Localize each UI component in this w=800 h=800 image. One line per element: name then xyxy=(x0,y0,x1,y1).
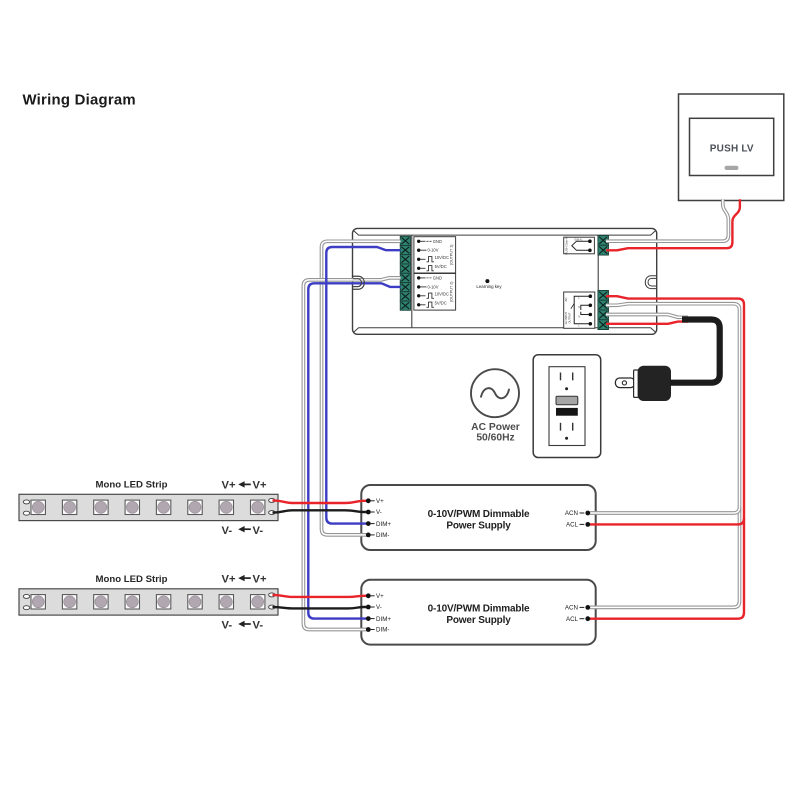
svg-text:V+: V+ xyxy=(222,480,236,492)
svg-text:N: N xyxy=(578,305,580,309)
svg-text:0-10V/PWM Dimmable: 0-10V/PWM Dimmable xyxy=(428,604,530,615)
svg-text:Mono LED Strip: Mono LED Strip xyxy=(96,574,168,585)
svg-text:N: N xyxy=(578,314,580,318)
svg-text:DIM-: DIM- xyxy=(376,627,389,634)
svg-text:V+: V+ xyxy=(222,573,236,585)
svg-text:V-: V- xyxy=(376,604,382,611)
svg-text:V-: V- xyxy=(253,620,264,632)
svg-text:V+: V+ xyxy=(253,480,267,492)
svg-text:V+: V+ xyxy=(253,573,267,585)
svg-text:50/60Hz: 50/60Hz xyxy=(476,433,514,444)
svg-text:(OUTPUT 1): (OUTPUT 1) xyxy=(449,244,453,265)
svg-text:DIM-N: DIM-N xyxy=(574,237,582,241)
svg-text:PUSH Dim-N: PUSH Dim-N xyxy=(565,237,569,255)
svg-text:AC: AC xyxy=(564,297,568,302)
svg-text:DIM-: DIM- xyxy=(376,532,389,539)
svg-text:10V/DC: 10V/DC xyxy=(435,255,449,260)
svg-text:ACL: ACL xyxy=(566,616,579,623)
svg-text:0-10V: 0-10V xyxy=(428,284,439,289)
svg-text:PUSH LV: PUSH LV xyxy=(710,144,754,155)
svg-text:AC INPUT: AC INPUT xyxy=(564,311,568,324)
svg-text:DIM+: DIM+ xyxy=(376,521,391,528)
svg-text:V-: V- xyxy=(222,620,233,632)
svg-text:ACN: ACN xyxy=(565,510,578,517)
svg-text:(OUTPUT 2): (OUTPUT 2) xyxy=(449,281,453,302)
svg-text:ACL: ACL xyxy=(566,522,579,529)
svg-text:OUTPUT: OUTPUT xyxy=(568,312,572,323)
svg-text:ACN: ACN xyxy=(565,605,578,612)
svg-text:Mono LED Strip: Mono LED Strip xyxy=(96,480,168,491)
svg-text:5V/DC: 5V/DC xyxy=(435,264,447,269)
svg-text:V+: V+ xyxy=(376,498,384,505)
svg-text:GND: GND xyxy=(433,239,442,244)
svg-text:V-: V- xyxy=(222,525,233,537)
svg-text:GND: GND xyxy=(433,275,442,280)
svg-text:Learning key: Learning key xyxy=(476,284,502,289)
svg-text:Power Supply: Power Supply xyxy=(446,615,511,626)
svg-text:AC Power: AC Power xyxy=(471,422,520,433)
svg-text:Power Supply: Power Supply xyxy=(446,520,511,531)
svg-text:0-10V/PWM Dimmable: 0-10V/PWM Dimmable xyxy=(428,509,530,520)
svg-text:DIM+: DIM+ xyxy=(376,616,391,623)
svg-text:V+: V+ xyxy=(376,593,384,600)
svg-text:10V/DC: 10V/DC xyxy=(435,292,449,297)
svg-text:0-10V: 0-10V xyxy=(428,248,439,253)
svg-text:V-: V- xyxy=(253,525,264,537)
svg-text:V-: V- xyxy=(376,509,382,516)
svg-text:Wiring Diagram: Wiring Diagram xyxy=(23,93,136,109)
svg-text:5V/DC: 5V/DC xyxy=(435,301,447,306)
